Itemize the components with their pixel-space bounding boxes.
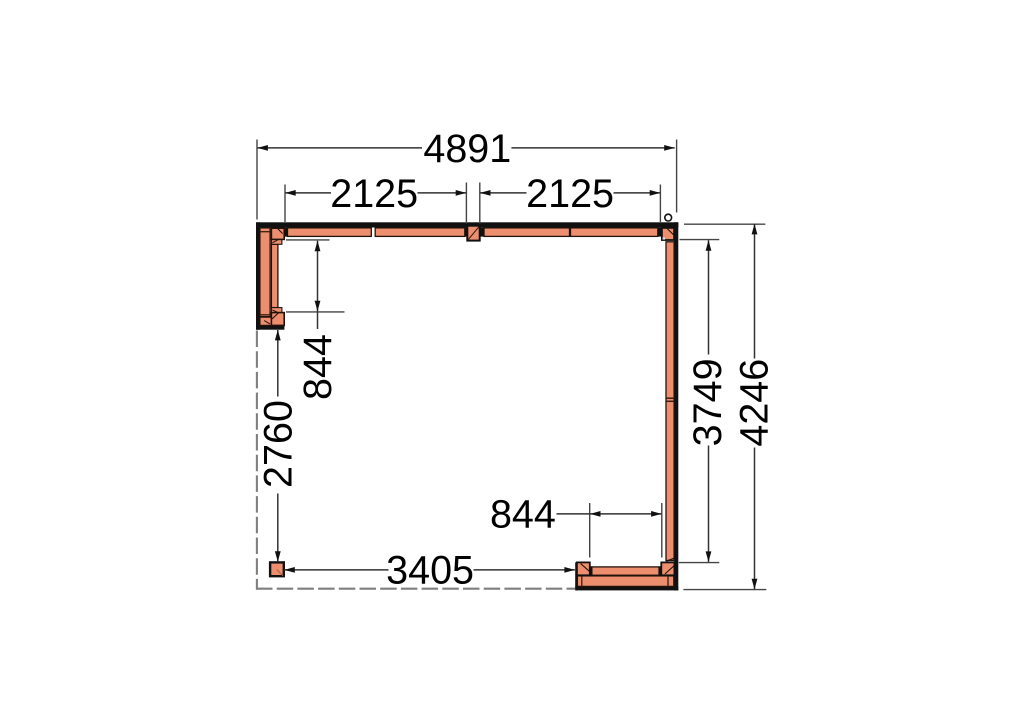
- svg-text:2125: 2125: [330, 172, 418, 216]
- svg-text:2125: 2125: [526, 172, 614, 216]
- svg-text:844: 844: [490, 493, 556, 537]
- svg-text:4891: 4891: [423, 127, 511, 171]
- svg-text:3405: 3405: [386, 549, 474, 593]
- svg-text:2760: 2760: [257, 400, 301, 488]
- svg-text:4246: 4246: [733, 359, 777, 447]
- svg-text:844: 844: [296, 334, 340, 400]
- svg-text:3749: 3749: [686, 358, 730, 446]
